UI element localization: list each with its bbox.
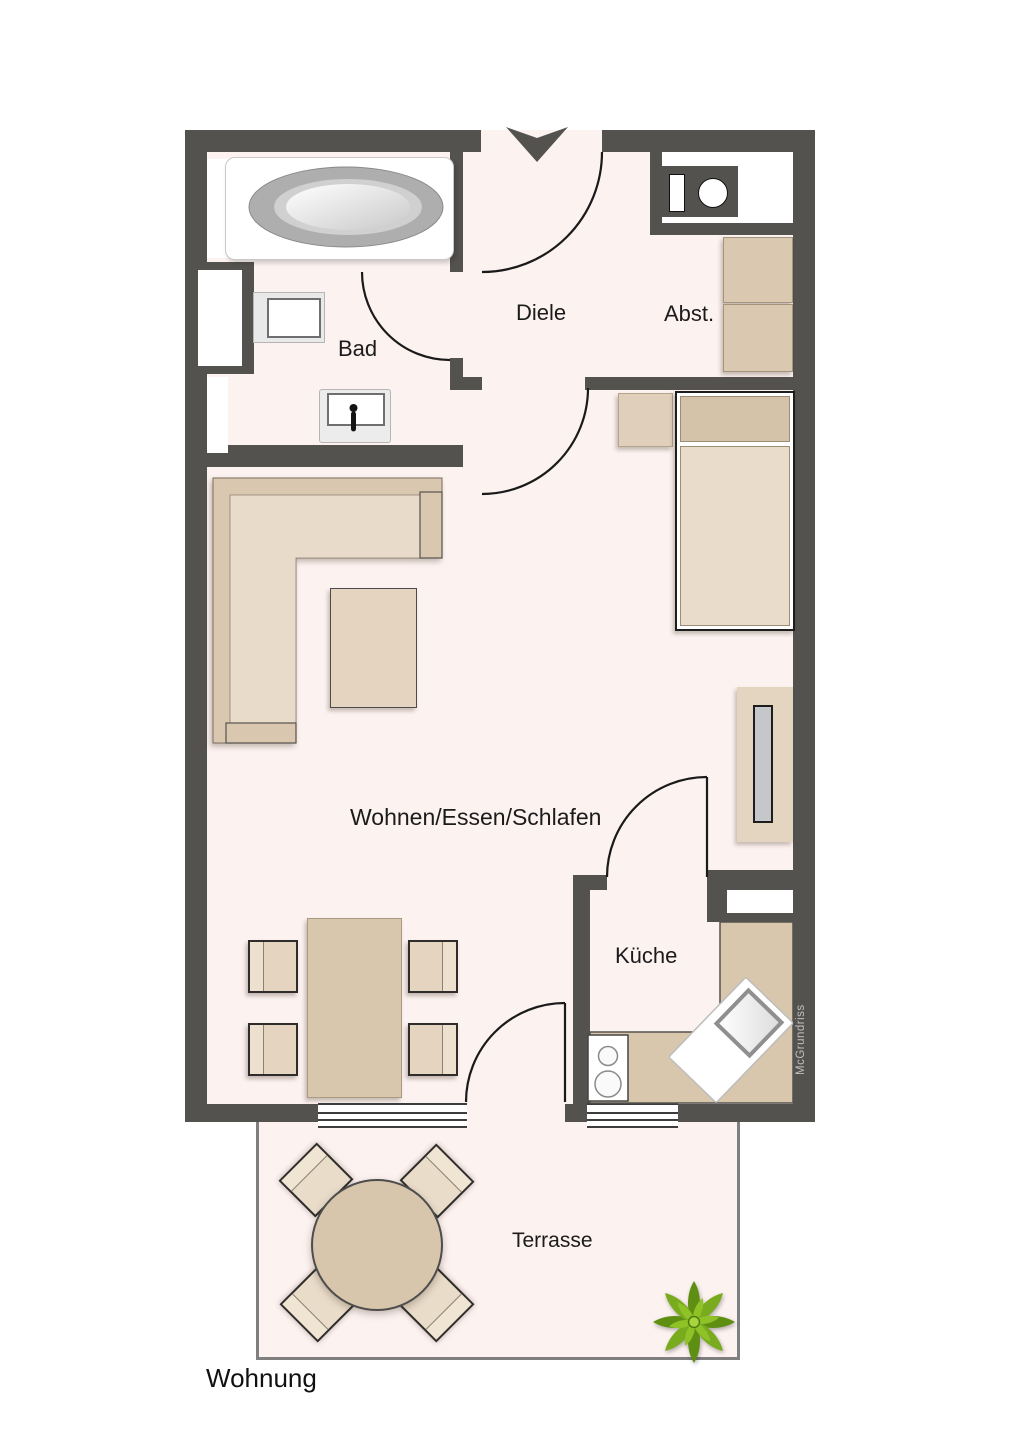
window-pane-line [587, 1119, 678, 1121]
room-label-kueche: Küche [615, 943, 677, 969]
wall-segment [185, 130, 481, 152]
wall-segment [207, 445, 463, 467]
chair-backrest [250, 942, 264, 991]
window [587, 1103, 678, 1128]
nightstand [618, 393, 673, 447]
wall-segment [573, 877, 590, 1122]
dining-chair [248, 1023, 298, 1076]
bed [675, 391, 795, 631]
wall-niche [207, 377, 228, 453]
wall-segment [463, 377, 482, 390]
floor-plan: Bad Diele Abst. Wohnen/Essen/Schlafen Kü… [0, 0, 1018, 1440]
washing-machine-detergent-tray [669, 174, 685, 212]
chair-backrest [250, 1025, 264, 1074]
dining-chair [408, 940, 458, 993]
wall-segment [793, 130, 815, 1122]
room-label-wohnen-essen-schlafen: Wohnen/Essen/Schlafen [350, 804, 601, 831]
toilet-cistern [327, 393, 385, 426]
coffee-table [330, 588, 417, 708]
bed-mattress [680, 446, 790, 626]
wall-segment [450, 358, 463, 390]
storage-cabinet [723, 304, 793, 372]
window [318, 1103, 467, 1128]
storage-cabinet [723, 237, 793, 303]
duct-shaft-interior [198, 270, 242, 366]
wall-segment [185, 1104, 318, 1122]
bed-pillow [680, 396, 790, 442]
wardrobe [737, 687, 793, 842]
plan-title: Wohnung [206, 1363, 317, 1394]
wall-segment [585, 377, 793, 390]
bathtub [225, 157, 454, 260]
chair-backrest [442, 942, 456, 991]
room-label-bad: Bad [338, 336, 377, 362]
wall-segment [677, 1104, 815, 1122]
room-label-diele: Diele [516, 300, 566, 326]
window-pane-line [587, 1112, 678, 1114]
watermark: McGrundriss [795, 1002, 813, 1078]
dining-chair [408, 1023, 458, 1076]
washbasin-bowl [267, 298, 321, 338]
window-pane-line [318, 1119, 467, 1121]
kitchen-pass-through [727, 890, 793, 913]
washing-machine-door [698, 178, 728, 208]
room-label-terrasse: Terrasse [512, 1229, 593, 1253]
wardrobe-door [753, 705, 773, 823]
dining-table [307, 918, 402, 1098]
chair-backrest [442, 1025, 456, 1074]
window-pane-line [318, 1112, 467, 1114]
room-label-abstellraum: Abst. [664, 301, 714, 327]
dining-chair [248, 940, 298, 993]
